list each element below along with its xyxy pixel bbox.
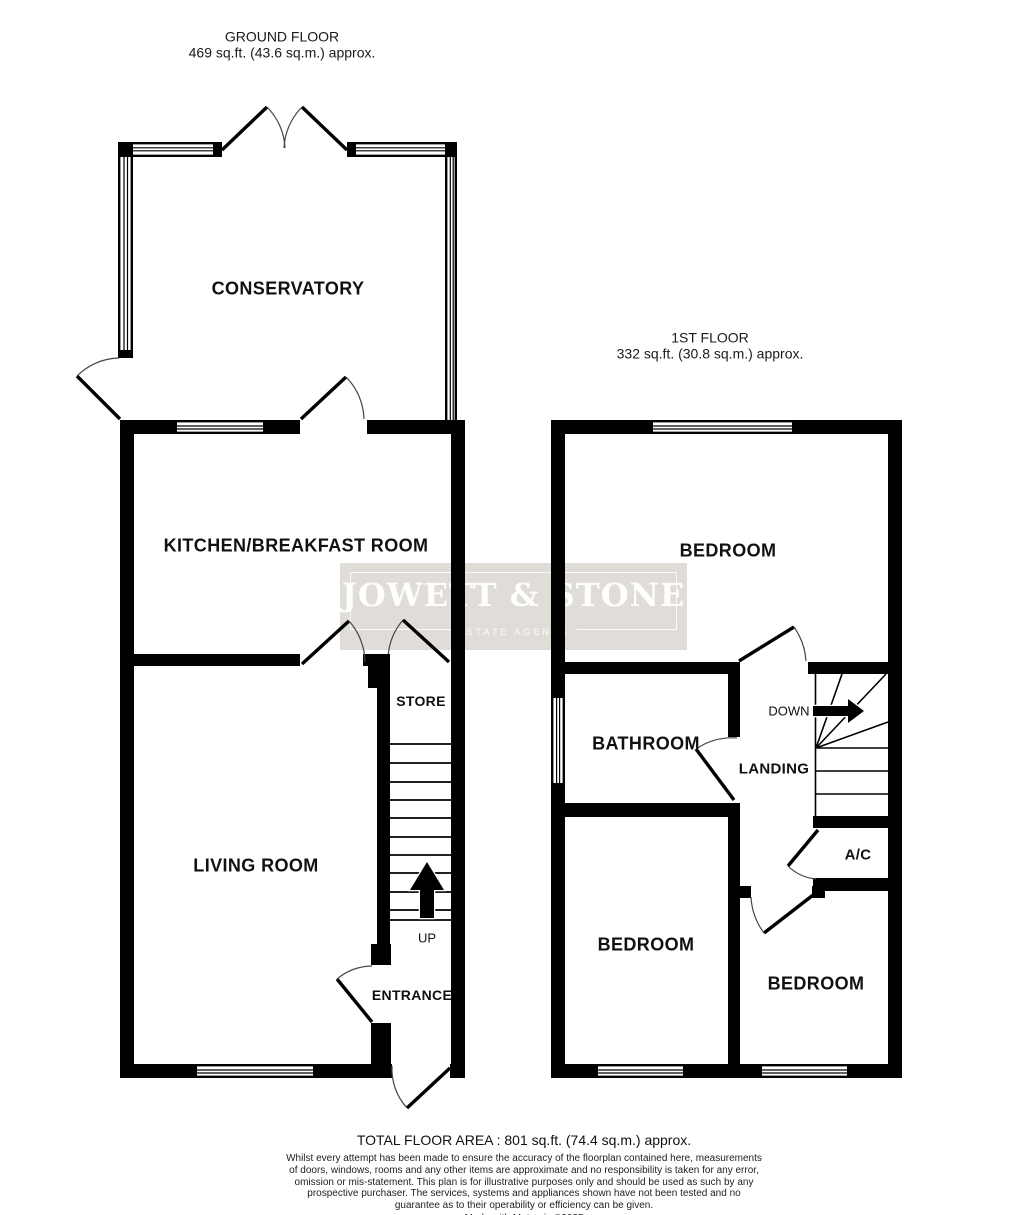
room-label-entrance: ENTRANCE: [372, 987, 452, 1003]
top-bedroom-wall: [565, 627, 888, 674]
stairs-up-label: UP: [418, 931, 436, 946]
ground-floor-plan: [77, 107, 465, 1108]
floorplan-drawing: [0, 0, 1024, 1215]
kitchen-conservatory-door: [301, 377, 364, 419]
ground-floor-area: 469 sq.ft. (43.6 sq.m.) approx.: [189, 46, 376, 61]
ground-floor-title: GROUND FLOOR: [189, 30, 376, 45]
entrance-inner-door: [337, 966, 372, 1022]
room-label-ac: A/C: [845, 847, 872, 864]
bedroom-divider-wall: [728, 803, 740, 1064]
room-label-bathroom: BATHROOM: [592, 734, 700, 755]
room-label-landing: LANDING: [739, 761, 809, 778]
room-label-kitchen: KITCHEN/BREAKFAST ROOM: [164, 536, 429, 557]
room-label-living-room: LIVING ROOM: [193, 856, 318, 877]
conservatory-french-doors: [222, 107, 347, 150]
conservatory-side-door: [77, 358, 120, 419]
total-floor-area: TOTAL FLOOR AREA : 801 sq.ft. (74.4 sq.m…: [284, 1132, 764, 1148]
room-label-bedroom-top: BEDROOM: [680, 541, 777, 562]
room-label-store: STORE: [396, 693, 445, 709]
ac-cupboard-walls: [788, 816, 888, 891]
front-door: [392, 1066, 450, 1108]
room-label-bedroom-right: BEDROOM: [768, 974, 865, 995]
first-floor-header: 1ST FLOOR 332 sq.ft. (30.8 sq.m.) approx…: [617, 331, 804, 362]
disclaimer-text: Whilst every attempt has been made to en…: [284, 1153, 764, 1212]
floorplan-page: JOWETT & STONE ESTATE AGENTS: [0, 0, 1024, 1215]
first-staircase: [815, 674, 888, 816]
first-floor-title: 1ST FLOOR: [617, 331, 804, 346]
first-floor-area: 332 sq.ft. (30.8 sq.m.) approx.: [617, 347, 804, 362]
kitchen-living-divider: [120, 620, 449, 688]
room-label-bedroom-left: BEDROOM: [598, 935, 695, 956]
footer: TOTAL FLOOR AREA : 801 sq.ft. (74.4 sq.m…: [284, 1132, 764, 1215]
ground-floor-header: GROUND FLOOR 469 sq.ft. (43.6 sq.m.) app…: [189, 30, 376, 61]
stairs-down-label: DOWN: [768, 704, 809, 719]
room-label-conservatory: CONSERVATORY: [212, 279, 365, 300]
ground-outer-walls: [120, 420, 465, 1078]
right-bedroom-door-wall: [740, 886, 825, 933]
down-arrow-icon: [813, 699, 864, 723]
